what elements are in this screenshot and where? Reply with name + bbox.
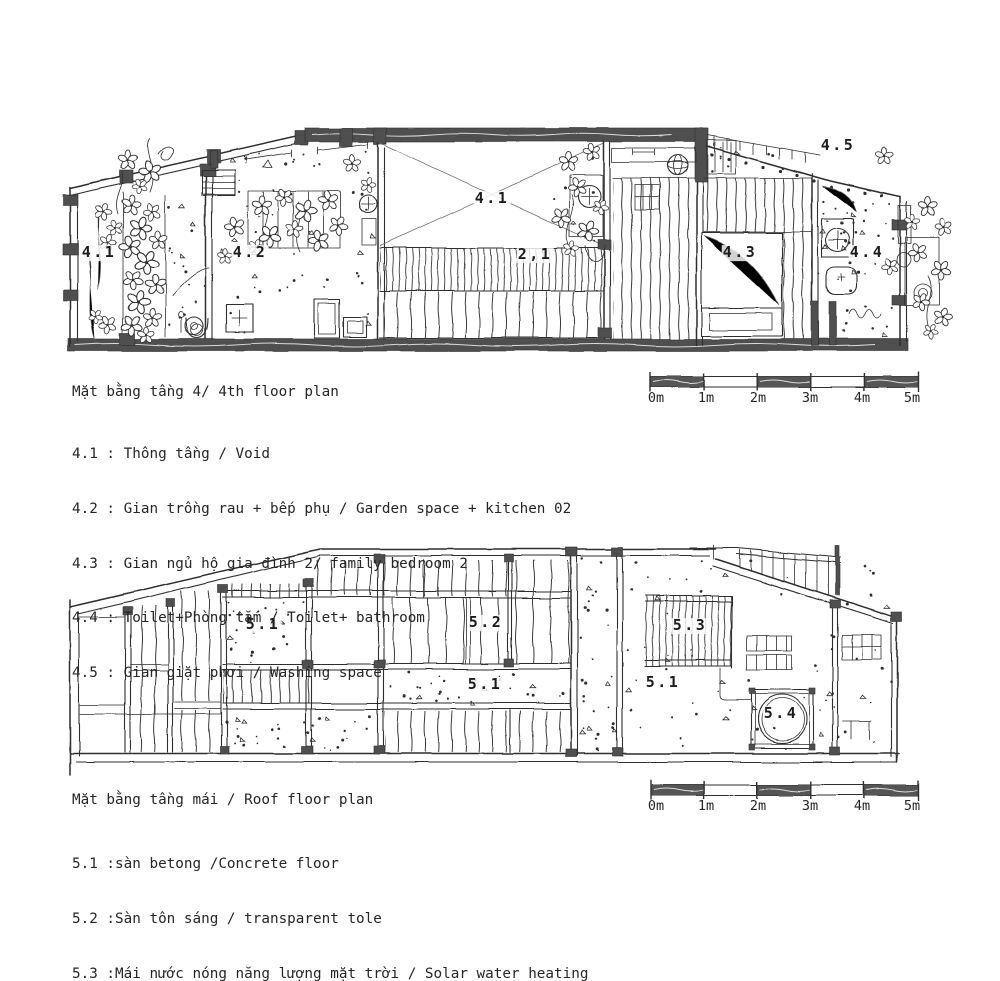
- scale-label-5m-bottom: 5m: [904, 799, 920, 813]
- void-railing: [380, 248, 604, 291]
- roof-title: Mặt bằng tầng mái / Roof floor plan: [72, 791, 373, 809]
- floor4-legend: 4.1 : Thông tầng / Void 4.2 : Gian trồng…: [72, 409, 571, 700]
- floor4-plan-drawing: [63, 128, 956, 351]
- scale-bar-drawing: [650, 372, 918, 393]
- legend-line: 4.2 : Gian trồng rau + bếp phụ / Garden …: [72, 500, 571, 518]
- stipple-kitchen-bay: [221, 150, 376, 333]
- architectural-sheet: 4.1 4.2 4.1 2,1 4.3 4.4 4.5 5.1 5.2 5.1 …: [0, 0, 1000, 981]
- scale-label-4m-top: 4m: [854, 391, 870, 405]
- stipple-roof-bottom: [225, 715, 371, 751]
- legend-line: 4.4 : Toilet+Phòng tắm / Toilet+ bathroo…: [72, 609, 571, 627]
- floor4-bottom-wall: [68, 339, 908, 351]
- scale-label-2m-top: 2m: [750, 391, 766, 405]
- stipple-roof-strip: [579, 557, 617, 752]
- scale-label-4m-bottom: 4m: [854, 799, 870, 813]
- scale-label-3m-top: 3m: [802, 391, 818, 405]
- scale-label-0m-top: 0m: [648, 391, 664, 405]
- scale-label-3m-bottom: 3m: [802, 799, 818, 813]
- room-label-4-3: 4.3: [722, 245, 759, 261]
- room-label-5-3: 5.3: [672, 618, 709, 634]
- legend-line: 4.5 : Gian giặt phơi / Washing space: [72, 664, 571, 682]
- scale-bar-bottom-drawing: [650, 780, 918, 801]
- kitchen-furniture: [185, 195, 377, 338]
- room-label-4-5: 4.5: [820, 138, 857, 154]
- void-fence: [380, 292, 604, 338]
- legend-line: 5.3 :Mái nước nóng năng lượng mặt trời /…: [72, 965, 588, 981]
- bedroom-4-3: [697, 140, 818, 345]
- legend-line: 5.1 :sàn betong /Concrete floor: [72, 855, 588, 873]
- room-label-5-1-c: 5.1: [645, 675, 682, 691]
- room-label-4-1-void: 4.1: [474, 191, 511, 207]
- floor4-top-wall: [305, 128, 707, 142]
- legend-line: 4.1 : Thông tầng / Void: [72, 445, 571, 463]
- scale-label-1m-bottom: 1m: [698, 799, 714, 813]
- curtain-section: [612, 148, 696, 339]
- roof-legend: 5.1 :sàn betong /Concrete floor 5.2 :Sàn…: [72, 819, 588, 981]
- floor4-roof-slope: [70, 134, 307, 188]
- room-label-2-1-railing: 2,1: [517, 247, 554, 263]
- scale-label-2m-bottom: 2m: [750, 799, 766, 813]
- legend-line: 5.2 :Sàn tôn sáng / transparent tole: [72, 910, 588, 928]
- scale-label-5m-top: 5m: [904, 391, 920, 405]
- roof-racks: [747, 635, 881, 739]
- legend-line: 4.3 : Gian ngủ hộ gia đình 2/ family bed…: [72, 555, 571, 573]
- floor4-title: Mặt bằng tầng 4/ 4th floor plan: [72, 383, 339, 401]
- scale-label-0m-bottom: 0m: [648, 799, 664, 813]
- room-label-4-1-garden: 4.1: [81, 245, 118, 261]
- room-label-4-4: 4.4: [849, 245, 886, 261]
- room-label-4-2: 4.2: [232, 245, 269, 261]
- roof-pergola: [690, 545, 840, 596]
- stipple-garden-strip: [168, 204, 206, 326]
- scale-label-1m-top: 1m: [698, 391, 714, 405]
- room-label-5-4: 5.4: [763, 706, 800, 722]
